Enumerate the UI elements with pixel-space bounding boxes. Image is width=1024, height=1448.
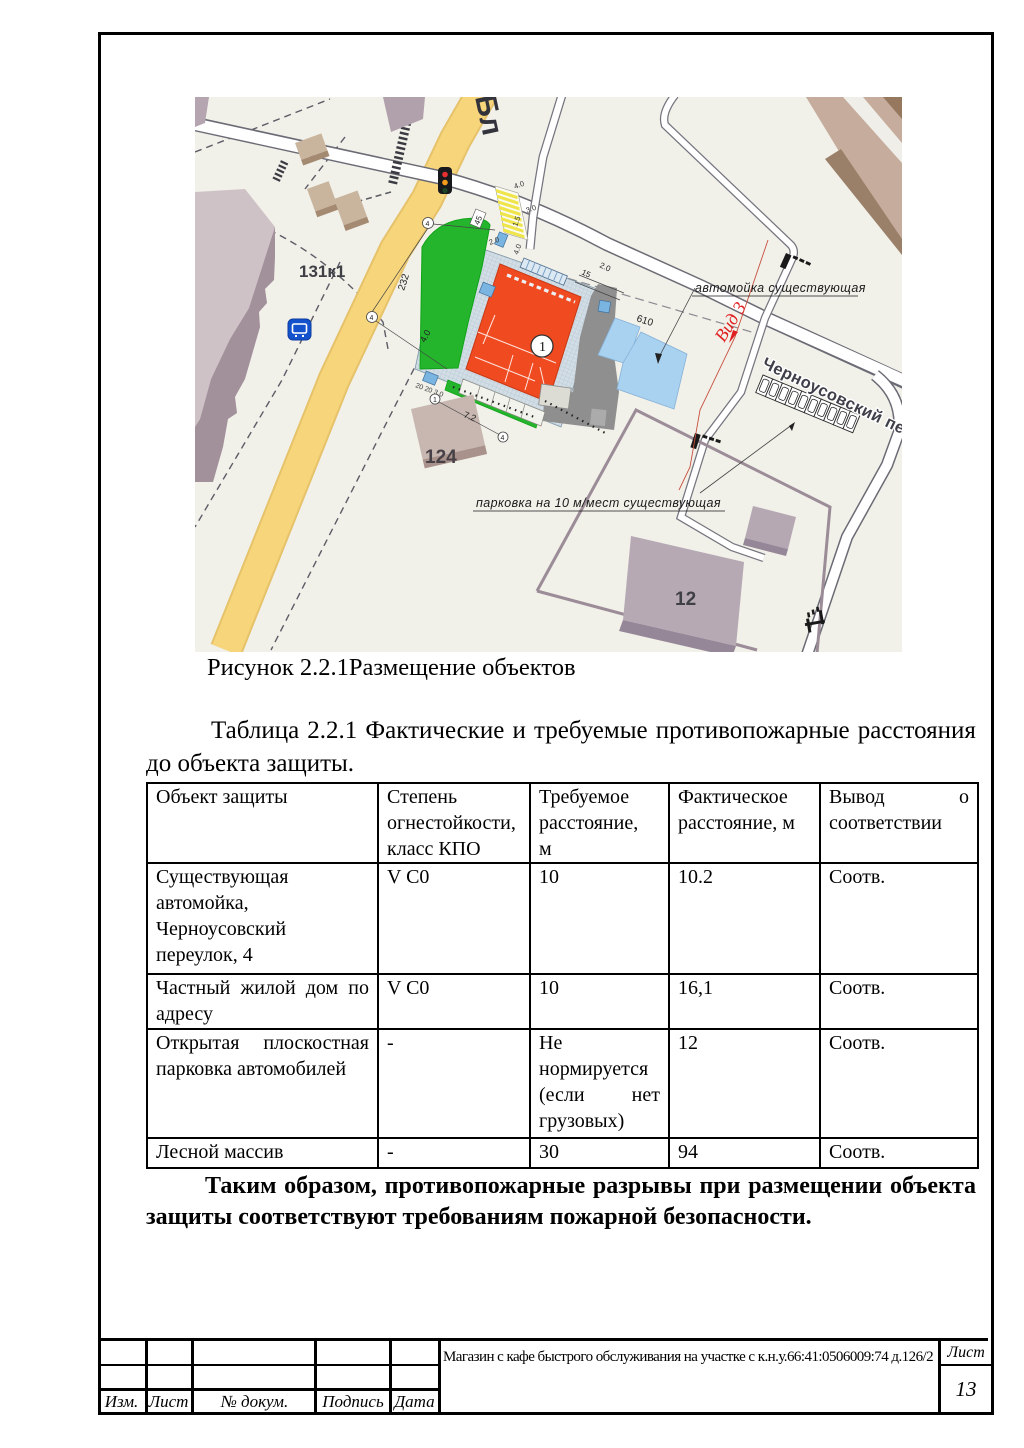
svg-text:4: 4 [426,221,430,228]
svg-text:1: 1 [539,340,546,355]
svg-text:4: 4 [501,435,505,442]
svg-text:124: 124 [425,447,457,468]
svg-text:автомойка существующая: автомойка существующая [695,281,866,295]
svg-text:парковка на 10 м/мест существ: парковка на 10 м/мест существующая [476,496,721,510]
svg-text:131к1: 131к1 [299,262,345,281]
svg-text:1: 1 [433,397,437,404]
svg-text:4: 4 [370,315,374,322]
svg-text:12: 12 [675,589,696,610]
